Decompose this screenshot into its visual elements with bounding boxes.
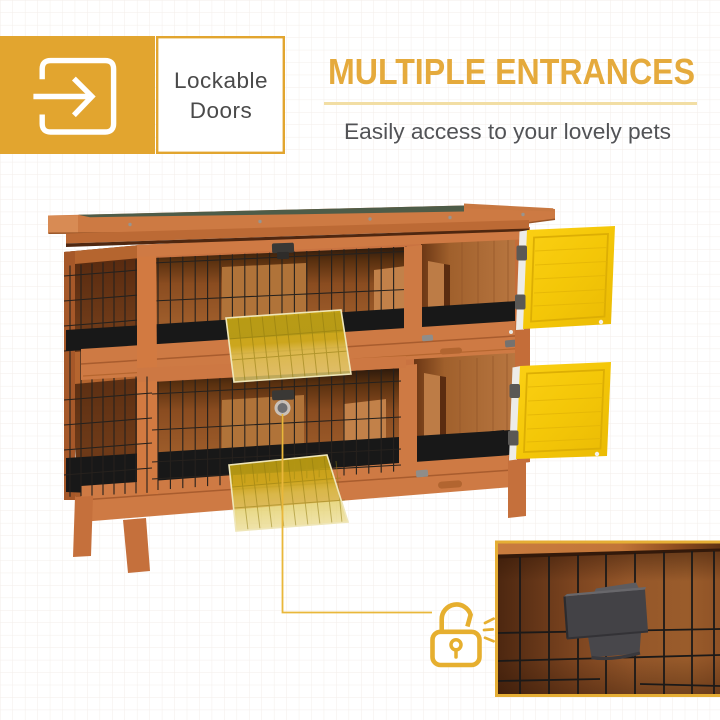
svg-text:Lockable: Lockable: [174, 68, 268, 93]
svg-text:Doors: Doors: [190, 98, 253, 123]
svg-text:MULTIPLE ENTRANCES: MULTIPLE ENTRANCES: [328, 51, 695, 92]
svg-text:Easily access to your lovely p: Easily access to your lovely pets: [344, 119, 671, 144]
